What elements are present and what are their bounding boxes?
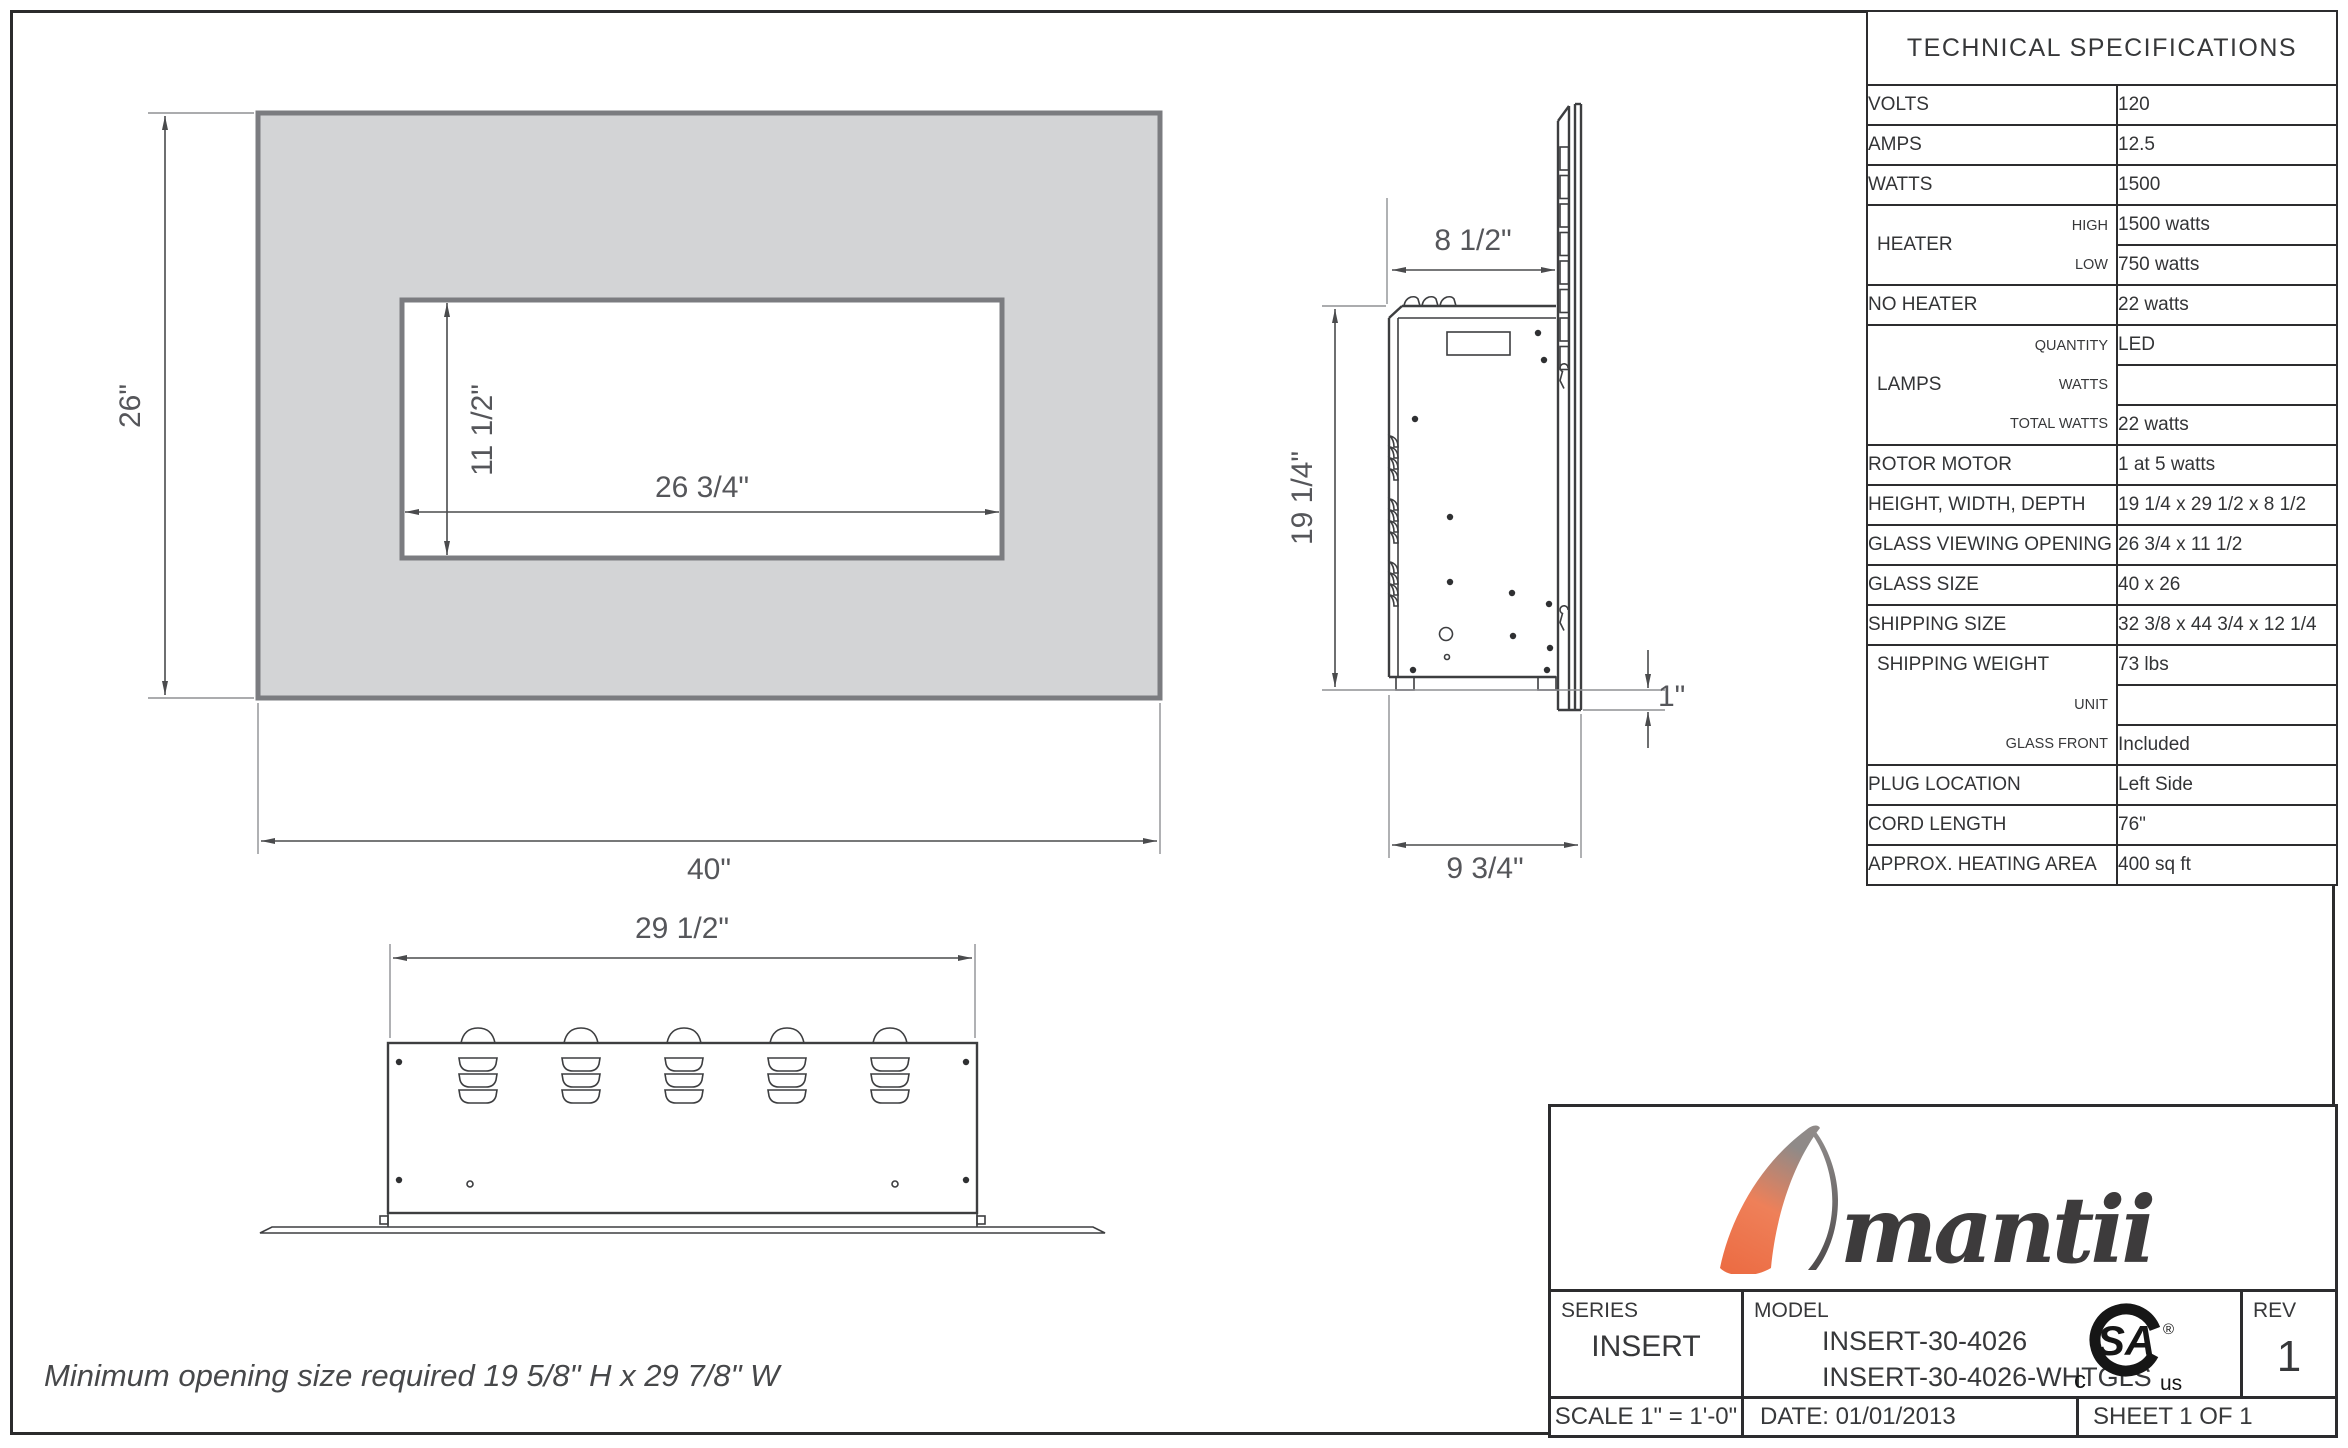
csa-certification-icon: SA c us ®: [2068, 1298, 2188, 1399]
side-base-depth-dim-label: 9 3/4": [1446, 852, 1523, 885]
spec-value: 1500 watts: [2117, 205, 2337, 245]
table-row: NO HEATER 22 watts: [1867, 285, 2337, 325]
bottom-louvers: [459, 1058, 909, 1103]
rev-value: 1: [2243, 1332, 2335, 1382]
spec-sub-label: TOTAL WATTS: [1868, 405, 2116, 444]
spec-value: 1 at 5 watts: [2117, 445, 2337, 485]
spec-value: 32 3/8 x 44 3/4 x 12 1/4: [2117, 605, 2337, 645]
amantii-logo-graphic: mantii: [1708, 1122, 2178, 1274]
spec-label: NO HEATER: [1867, 285, 2117, 325]
spec-value: 19 1/4 x 29 1/2 x 8 1/2: [2117, 485, 2337, 525]
amantii-logo-text: mantii: [1840, 1176, 2152, 1274]
spec-label: CORD LENGTH: [1867, 805, 2117, 845]
date-cell: DATE: 01/01/2013: [1744, 1399, 2079, 1435]
table-row: VOLTS 120: [1867, 85, 2337, 125]
spec-value: 76": [2117, 805, 2337, 845]
mounting-hook-lower: [1560, 606, 1568, 631]
table-row: ROTOR MOTOR 1 at 5 watts: [1867, 445, 2337, 485]
spec-label: VOLTS: [1867, 85, 2117, 125]
series-value: INSERT: [1551, 1330, 1741, 1364]
bottom-louver-domes: [461, 1028, 907, 1043]
rev-cell: REV 1: [2243, 1292, 2335, 1396]
side-height-dim-label: 19 1/4": [1286, 451, 1319, 545]
spec-value: 22 watts: [2117, 405, 2337, 445]
spec-group-label: HEATER HIGH LOW: [1867, 205, 2117, 285]
series-cell: SERIES INSERT: [1551, 1292, 1744, 1396]
table-row: AMPS 12.5: [1867, 125, 2337, 165]
side-foot-left: [1396, 677, 1414, 690]
model-cell: MODEL INSERT-30-4026 INSERT-30-4026-WHTG…: [1744, 1292, 2243, 1396]
front-height-dim-label: 26": [114, 384, 147, 428]
minimum-opening-note: Minimum opening size required 19 5/8" H …: [44, 1358, 779, 1394]
table-row: LAMPS QUANTITY WATTS TOTAL WATTS LED: [1867, 325, 2337, 365]
glass-drop-dim-label: 1": [1658, 680, 1685, 713]
spec-sub-label: GLASS FRONT: [1868, 725, 2116, 764]
table-row: SHIPPING WEIGHT UNIT GLASS FRONT 73 lbs: [1867, 645, 2337, 685]
csa-us-text: us: [2160, 1372, 2182, 1394]
bottom-view: 29 1/2": [260, 912, 1105, 1233]
spec-label: ROTOR MOTOR: [1867, 445, 2117, 485]
spec-value: 400 sq ft: [2117, 845, 2337, 885]
spec-value: 750 watts: [2117, 245, 2337, 285]
front-view: 26" 40" 11 1/2" 26 3/4": [114, 113, 1160, 886]
spec-value: 1500: [2117, 165, 2337, 205]
spec-value: [2117, 365, 2337, 405]
series-label: SERIES: [1561, 1299, 1638, 1323]
table-row: SHIPPING SIZE 32 3/8 x 44 3/4 x 12 1/4: [1867, 605, 2337, 645]
specs-title: TECHNICAL SPECIFICATIONS: [1867, 11, 2337, 85]
side-foot-right: [1538, 677, 1556, 690]
amantii-logo: mantii: [1551, 1107, 2335, 1292]
side-louvers: [1390, 436, 1398, 606]
table-row: APPROX. HEATING AREA 400 sq ft: [1867, 845, 2337, 885]
table-row: CORD LENGTH 76": [1867, 805, 2337, 845]
csa-mark-text: SA: [2097, 1317, 2155, 1364]
table-row: HEATER HIGH LOW 1500 watts: [1867, 205, 2337, 245]
bottom-trim-plate: [260, 1227, 1105, 1233]
amantii-logo-a-tail: [1808, 1132, 1838, 1270]
mounting-hook-upper: [1560, 364, 1568, 389]
spec-group-label: SHIPPING WEIGHT UNIT GLASS FRONT: [1867, 645, 2117, 765]
bottom-body: [388, 1043, 977, 1213]
spec-label: GLASS SIZE: [1867, 565, 2117, 605]
spec-group-label: LAMPS QUANTITY WATTS TOTAL WATTS: [1867, 325, 2117, 445]
spec-label: APPROX. HEATING AREA: [1867, 845, 2117, 885]
spec-label: WATTS: [1867, 165, 2117, 205]
model-label: MODEL: [1754, 1299, 1829, 1323]
spec-label: GLASS VIEWING OPENING: [1867, 525, 2117, 565]
drawing-sheet: 26" 40" 11 1/2" 26 3/4": [0, 0, 2348, 1448]
bottom-screws: [396, 1059, 969, 1187]
opening-height-dim-label: 11 1/2": [466, 384, 499, 476]
spec-value: 12.5: [2117, 125, 2337, 165]
spec-value: Left Side: [2117, 765, 2337, 805]
table-row: GLASS VIEWING OPENING 26 3/4 x 11 1/2: [1867, 525, 2337, 565]
spec-label: HEATER: [1877, 234, 1953, 256]
scale-cell: SCALE 1" = 1'-0": [1551, 1399, 1744, 1435]
spec-value: 26 3/4 x 11 1/2: [2117, 525, 2337, 565]
csa-c-text: c: [2074, 1367, 2086, 1394]
spec-label: PLUG LOCATION: [1867, 765, 2117, 805]
spec-sub-label: UNIT: [1868, 685, 2116, 724]
spec-value: LED: [2117, 325, 2337, 365]
spec-label: SHIPPING WEIGHT: [1877, 654, 2049, 676]
side-rivets: [1410, 330, 1553, 673]
amantii-logo-a-swoosh: [1720, 1126, 1820, 1274]
spec-value: [2117, 685, 2337, 725]
side-control-recess: [1447, 332, 1510, 355]
spec-value: 22 watts: [2117, 285, 2337, 325]
side-top-depth-dim-label: 8 1/2": [1434, 224, 1511, 257]
spec-sub-label: QUANTITY: [1868, 326, 2116, 365]
table-row: WATTS 1500: [1867, 165, 2337, 205]
spec-value: 120: [2117, 85, 2337, 125]
glass-panel-vent-slots: [1560, 147, 1569, 370]
rev-label: REV: [2253, 1299, 2296, 1323]
spec-label: LAMPS: [1877, 374, 1941, 396]
spec-value: 40 x 26: [2117, 565, 2337, 605]
technical-specifications-table: TECHNICAL SPECIFICATIONS VOLTS 120 AMPS …: [1866, 10, 2338, 886]
table-row: PLUG LOCATION Left Side: [1867, 765, 2337, 805]
spec-label: HEIGHT, WIDTH, DEPTH: [1867, 485, 2117, 525]
title-block: mantii SERIES INSERT MODEL INSERT-30-402…: [1548, 1104, 2338, 1438]
table-row: GLASS SIZE 40 x 26: [1867, 565, 2337, 605]
csa-registered-mark: ®: [2163, 1321, 2174, 1338]
spec-label: AMPS: [1867, 125, 2117, 165]
table-row: HEIGHT, WIDTH, DEPTH 19 1/4 x 29 1/2 x 8…: [1867, 485, 2337, 525]
spec-label: SHIPPING SIZE: [1867, 605, 2117, 645]
side-view: 8 1/2" 19 1/4" 1" 9 3/4": [1286, 104, 1685, 885]
bottom-width-dim-label: 29 1/2": [635, 912, 729, 945]
cord-hole: [1440, 628, 1453, 641]
spec-value: Included: [2117, 725, 2337, 765]
spec-value: 73 lbs: [2117, 645, 2337, 685]
front-width-dim-label: 40": [687, 853, 731, 886]
sheet-cell: SHEET 1 OF 1: [2079, 1399, 2335, 1435]
opening-width-dim-label: 26 3/4": [655, 471, 749, 504]
